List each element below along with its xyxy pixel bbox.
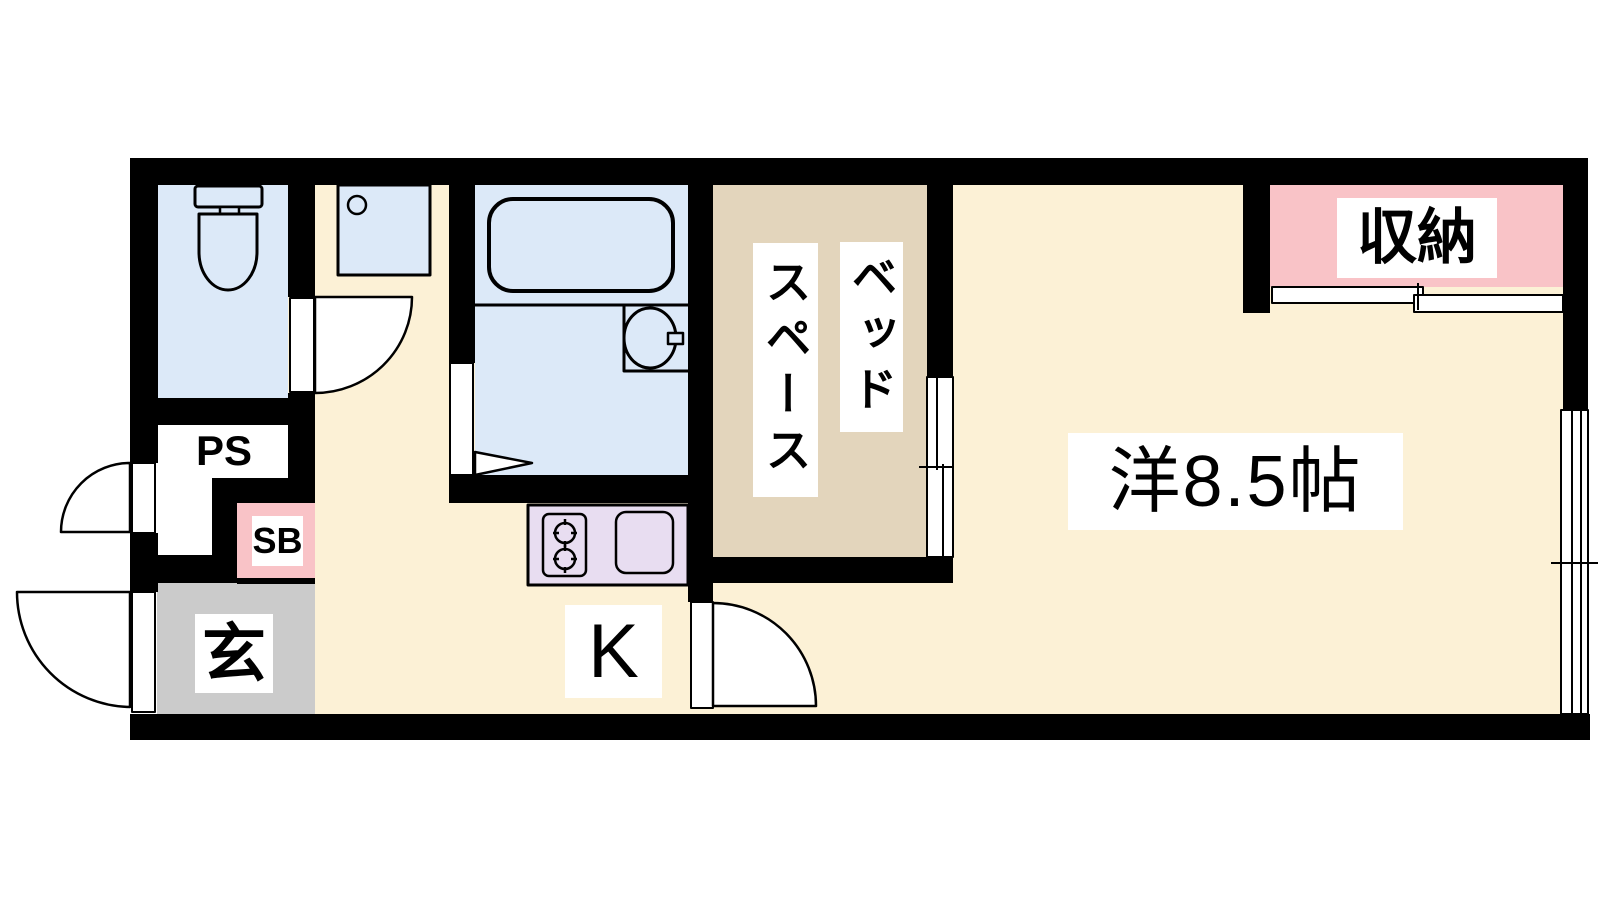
entrance-door-leaf	[132, 592, 155, 712]
meter-box-door-leaf	[132, 463, 155, 533]
washbasin-tap	[668, 333, 683, 344]
entrance-label: 玄	[195, 614, 273, 693]
wall-bedspace-bottom	[688, 557, 953, 583]
wall-ps-bottom	[157, 555, 212, 583]
wall-partition	[927, 183, 953, 377]
bathroom-folding-door-leaf	[450, 363, 473, 475]
toilet-door-leaf	[290, 298, 314, 392]
closet-sliding-door-right	[1414, 295, 1563, 312]
kitchen-door-leaf	[691, 602, 713, 708]
storage-label: 収納	[1337, 198, 1497, 278]
closet-sliding-door-left	[1272, 287, 1423, 303]
kitchen-label: K	[565, 605, 662, 698]
entrance-door-swing	[17, 592, 130, 707]
wall-right-upper	[1563, 158, 1588, 410]
wall-bottom	[130, 714, 1590, 740]
wall-bath-bedspace	[688, 183, 713, 602]
bathtub	[489, 199, 673, 291]
kitchen-sink	[616, 512, 673, 573]
wall-above-entrance	[237, 578, 315, 584]
pipe-space-floor-lower	[157, 478, 212, 555]
bed-space-label-left: スペース	[753, 243, 818, 497]
wall-storage-left	[1243, 185, 1270, 313]
bed-space-label-right: ベッド	[840, 242, 903, 432]
floor-plan: PS SB 玄 K ベッド スペース 洋8.5帖 収納	[0, 0, 1600, 900]
wall-toilet-upper	[288, 183, 315, 297]
shoe-box-label: SB	[252, 516, 303, 566]
toilet-tank	[195, 186, 262, 207]
wall-bath-left	[449, 183, 475, 363]
pipe-space-label: PS	[158, 426, 290, 476]
wall-ps-horizontal	[212, 478, 315, 503]
wall-below-toilet	[130, 398, 315, 425]
wall-top	[130, 158, 1588, 185]
wall-left-mid	[130, 533, 158, 592]
laundry-faucet-hole	[348, 196, 366, 214]
meter-box-door-swing	[61, 463, 130, 532]
main-room-label: 洋8.5帖	[1068, 433, 1403, 530]
toilet-bowl	[199, 214, 257, 290]
wall-bath-bottom	[449, 475, 713, 503]
wall-ps-vertical	[212, 503, 237, 583]
